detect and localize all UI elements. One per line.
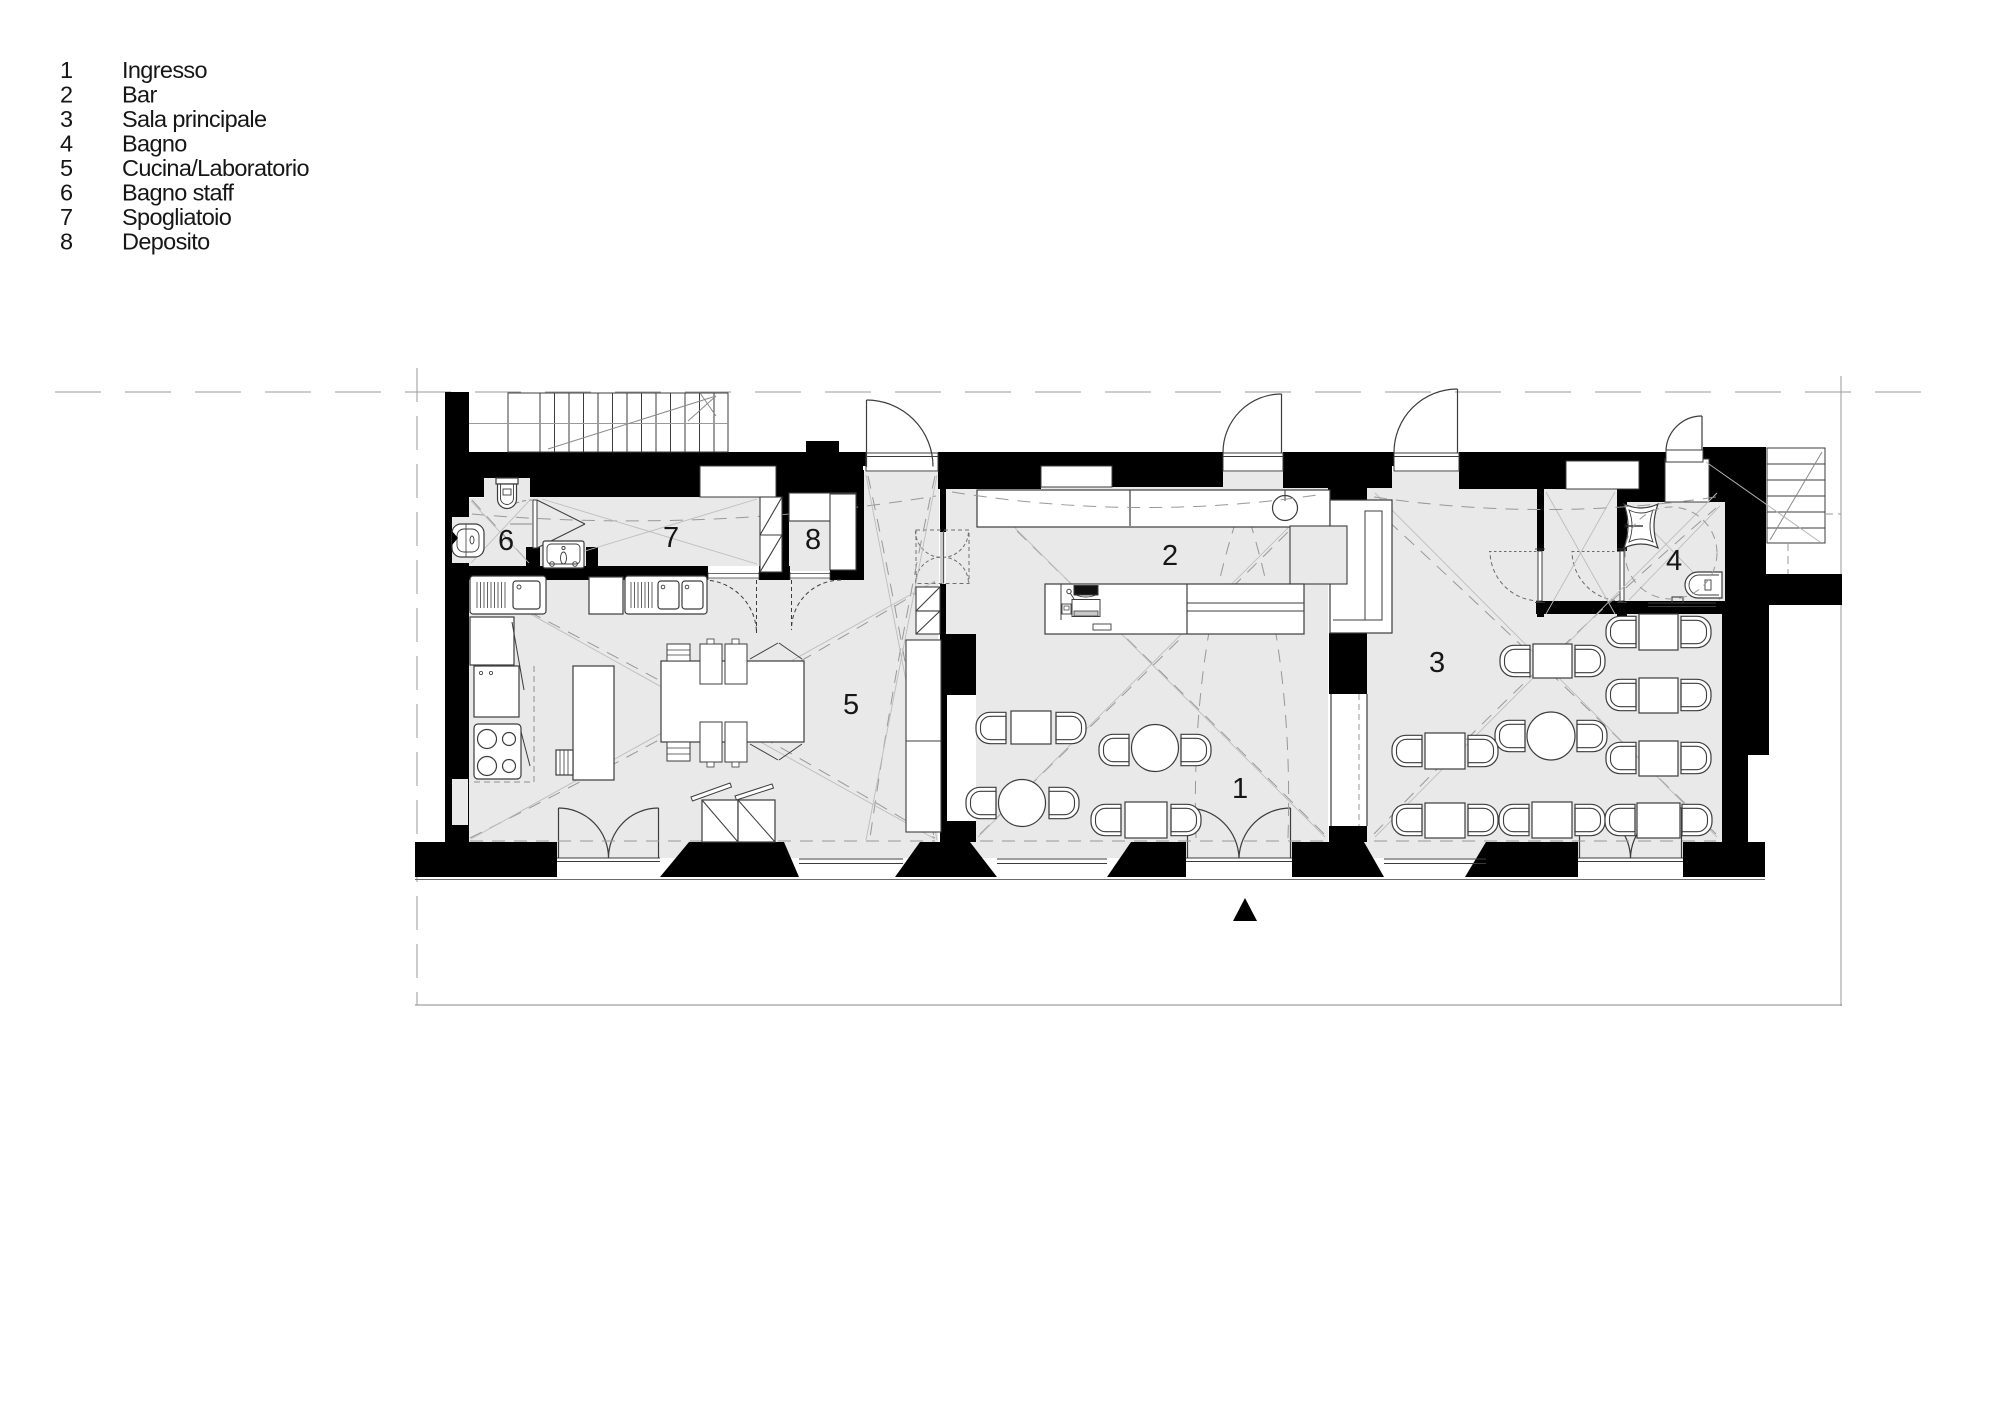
svg-text:Deposito: Deposito — [122, 229, 210, 255]
svg-text:4: 4 — [60, 131, 73, 157]
svg-text:Bagno: Bagno — [122, 131, 187, 157]
svg-text:3: 3 — [60, 106, 73, 132]
svg-text:Ingresso: Ingresso — [122, 57, 208, 83]
svg-text:7: 7 — [60, 204, 72, 230]
svg-text:Cucina/Laboratorio: Cucina/Laboratorio — [122, 155, 309, 181]
svg-text:3: 3 — [1429, 647, 1445, 679]
svg-text:5: 5 — [60, 155, 73, 181]
svg-text:Sala principale: Sala principale — [122, 106, 267, 132]
svg-text:7: 7 — [663, 522, 679, 554]
svg-text:Spogliatoio: Spogliatoio — [122, 204, 232, 230]
svg-text:1: 1 — [1232, 773, 1248, 805]
svg-text:6: 6 — [60, 180, 73, 206]
svg-text:4: 4 — [1666, 545, 1682, 577]
svg-text:8: 8 — [805, 524, 821, 556]
svg-text:Bagno staff: Bagno staff — [122, 180, 234, 206]
svg-text:Bar: Bar — [122, 82, 157, 108]
svg-text:5: 5 — [843, 689, 859, 721]
svg-text:8: 8 — [60, 229, 73, 255]
svg-text:1: 1 — [60, 57, 72, 83]
svg-text:2: 2 — [60, 82, 72, 108]
svg-text:2: 2 — [1162, 540, 1178, 572]
svg-text:6: 6 — [498, 525, 514, 557]
